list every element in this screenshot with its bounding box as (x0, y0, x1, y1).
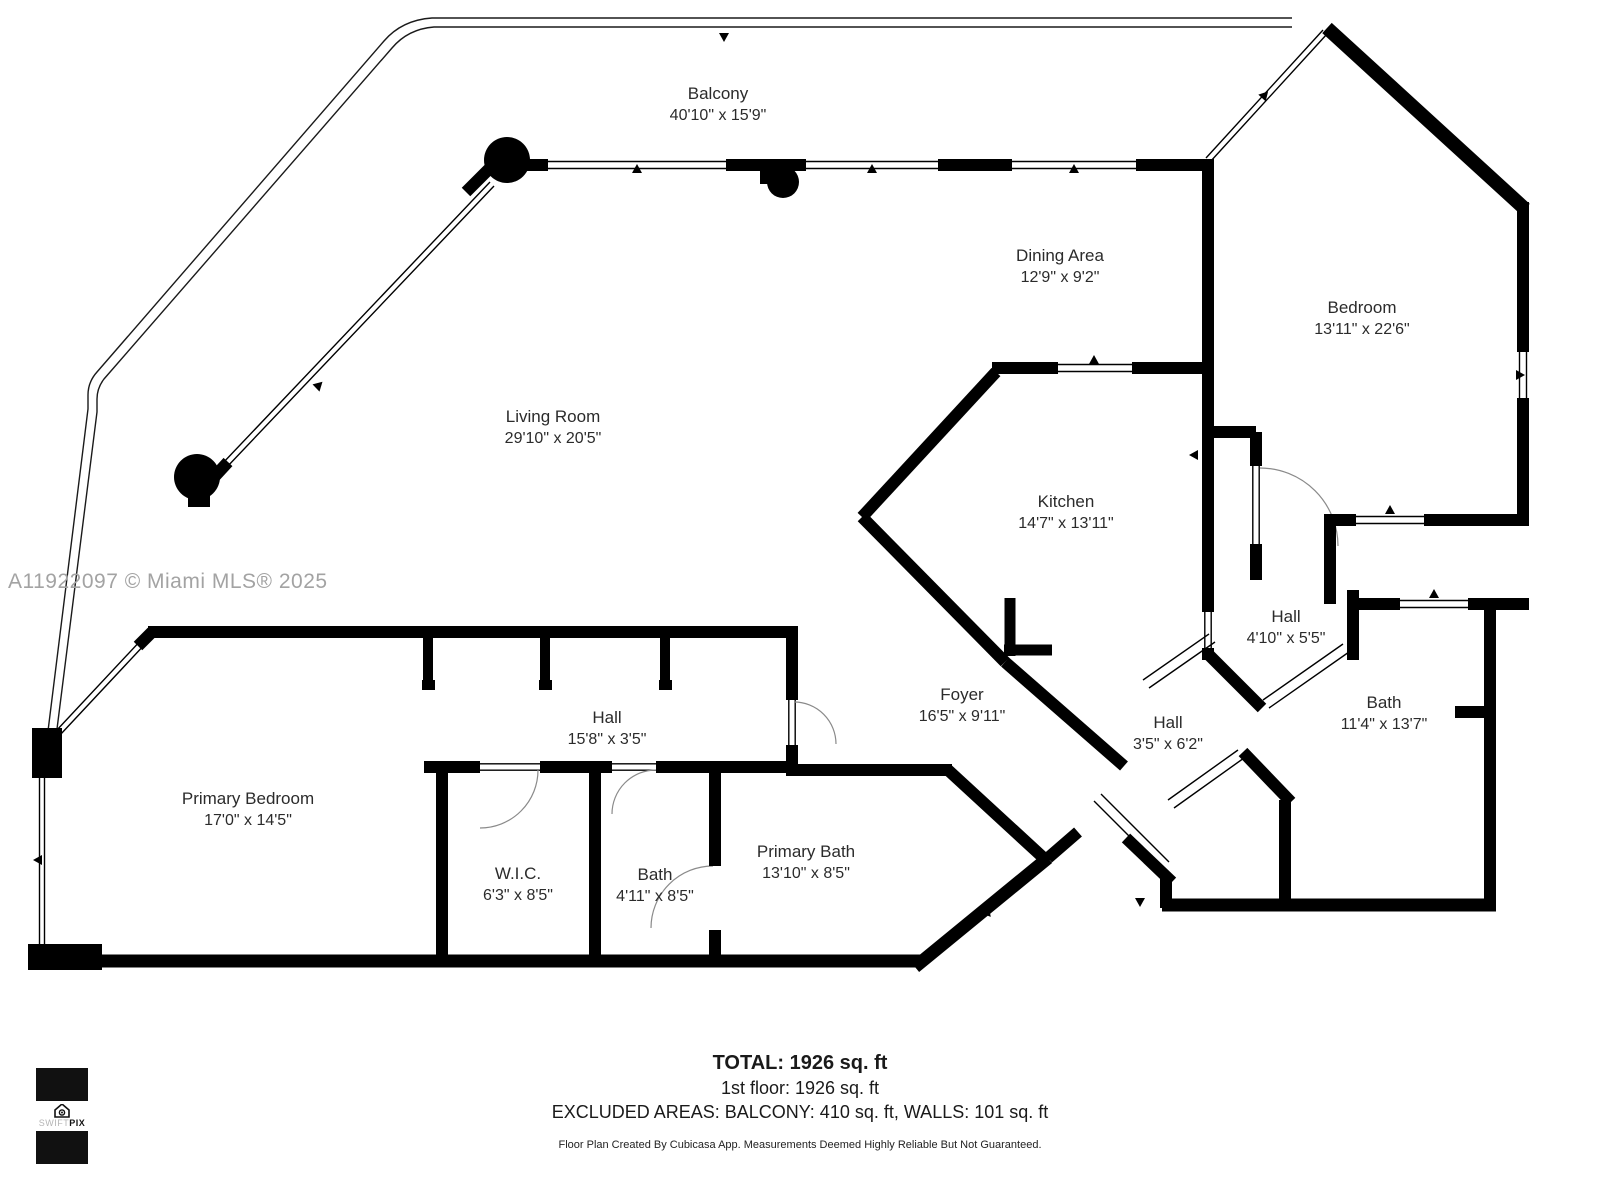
mls-watermark: A11922097 © Miami MLS® 2025 (8, 570, 328, 594)
excluded-areas: EXCLUDED AREAS: BALCONY: 410 sq. ft, WAL… (0, 1102, 1600, 1123)
floorplan-page: Balcony 40'10" x 15'9" Dining Area 12'9"… (0, 0, 1600, 1200)
swiftpix-logo: SWIFTPIX (36, 1068, 88, 1164)
logo-top-block (36, 1068, 88, 1101)
logo-wordmark: SWIFTPIX (39, 1119, 86, 1128)
first-floor-area: 1st floor: 1926 sq. ft (0, 1078, 1600, 1099)
disclaimer: Floor Plan Created By Cubicasa App. Meas… (0, 1139, 1600, 1151)
balcony-railing (48, 18, 1292, 731)
floorplan-svg (0, 0, 1600, 1200)
total-area: TOTAL: 1926 sq. ft (0, 1052, 1600, 1075)
area-summary: TOTAL: 1926 sq. ft 1st floor: 1926 sq. f… (0, 1052, 1600, 1151)
logo-bottom-block (36, 1131, 88, 1164)
house-camera-icon (54, 1104, 70, 1118)
